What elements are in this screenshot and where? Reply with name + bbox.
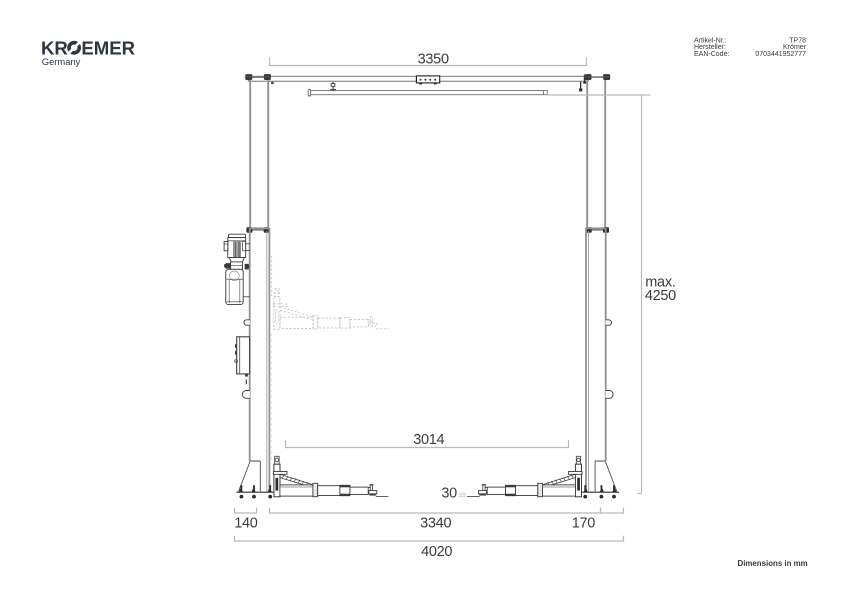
- svg-text:3340: 3340: [420, 515, 451, 531]
- svg-text:Germany: Germany: [42, 56, 81, 67]
- svg-text:30: 30: [441, 486, 457, 502]
- svg-text:140: 140: [234, 515, 258, 531]
- svg-text:EMER: EMER: [81, 38, 135, 59]
- svg-text:4020: 4020: [421, 544, 452, 560]
- svg-text:4250: 4250: [645, 288, 676, 304]
- svg-text:170: 170: [572, 515, 596, 531]
- svg-text:3014: 3014: [413, 432, 444, 448]
- svg-text:Dimensions in mm: Dimensions in mm: [738, 559, 808, 568]
- svg-text:0703441952777: 0703441952777: [755, 51, 806, 58]
- svg-text:3350: 3350: [418, 51, 449, 67]
- svg-text:EAN-Code:: EAN-Code:: [694, 51, 729, 58]
